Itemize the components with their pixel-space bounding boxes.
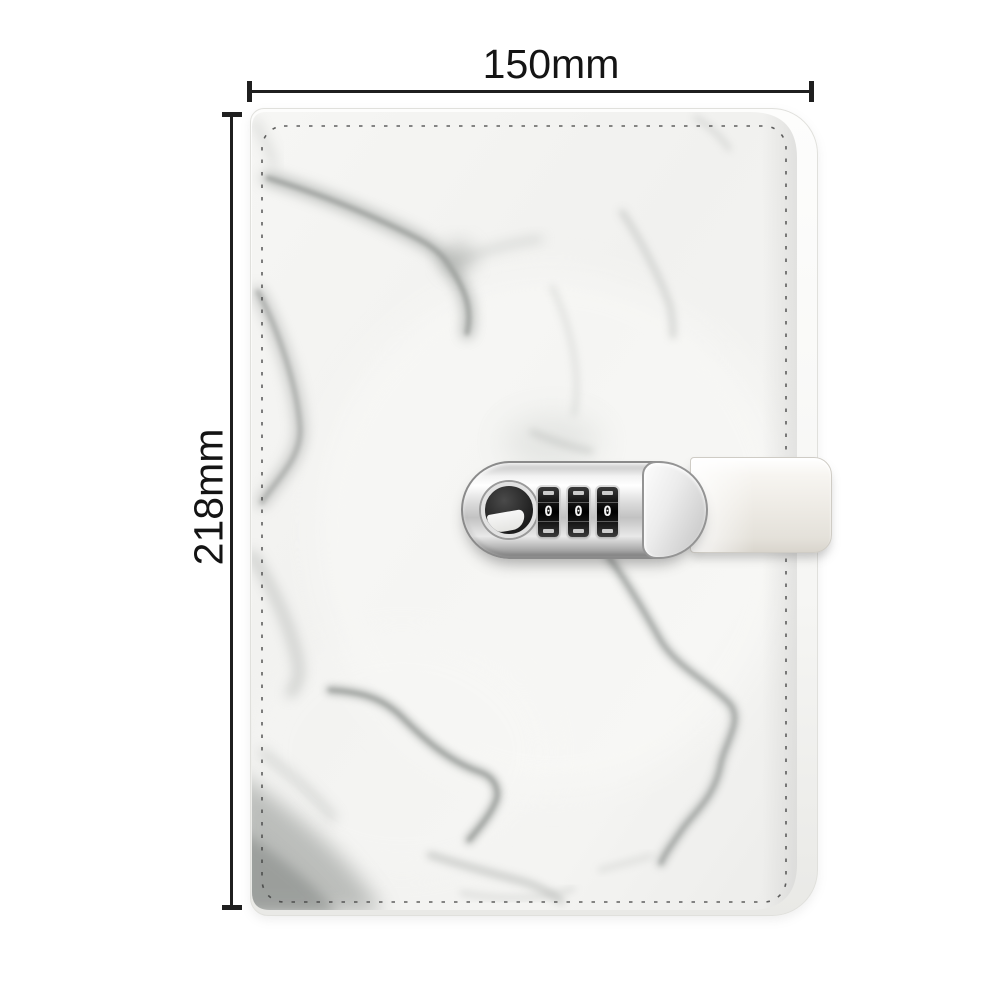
- dial-notch-top: [543, 491, 554, 495]
- dial-digit: 0: [597, 502, 618, 522]
- lock-strap: [690, 457, 832, 553]
- hole-reflection: [487, 509, 527, 534]
- height-dimension-line: [230, 114, 233, 907]
- width-dimension-label: 150mm: [483, 44, 620, 85]
- width-dimension-cap-left: [247, 81, 252, 102]
- dial-notch-bottom: [543, 529, 554, 533]
- dial-digit: 0: [568, 502, 589, 522]
- width-dimension-cap-right: [809, 81, 814, 102]
- lock-dial-3: 0: [597, 487, 618, 537]
- product-image: 150mm 218mm: [0, 0, 1000, 1000]
- dial-digit: 0: [538, 502, 559, 522]
- height-dimension-cap-bottom: [222, 905, 242, 910]
- dial-notch-bottom: [602, 529, 613, 533]
- dial-notch-bottom: [573, 529, 584, 533]
- height-dimension-label: 218mm: [189, 429, 230, 566]
- width-dimension-line: [250, 90, 812, 93]
- dial-notch-top: [602, 491, 613, 495]
- dial-notch-top: [573, 491, 584, 495]
- lock-dial-1: 0: [538, 487, 559, 537]
- lock-snap-hole: [481, 482, 537, 538]
- combination-lock: 0 0 0: [461, 461, 706, 559]
- lock-dial-2: 0: [568, 487, 589, 537]
- height-dimension-cap-top: [222, 112, 242, 117]
